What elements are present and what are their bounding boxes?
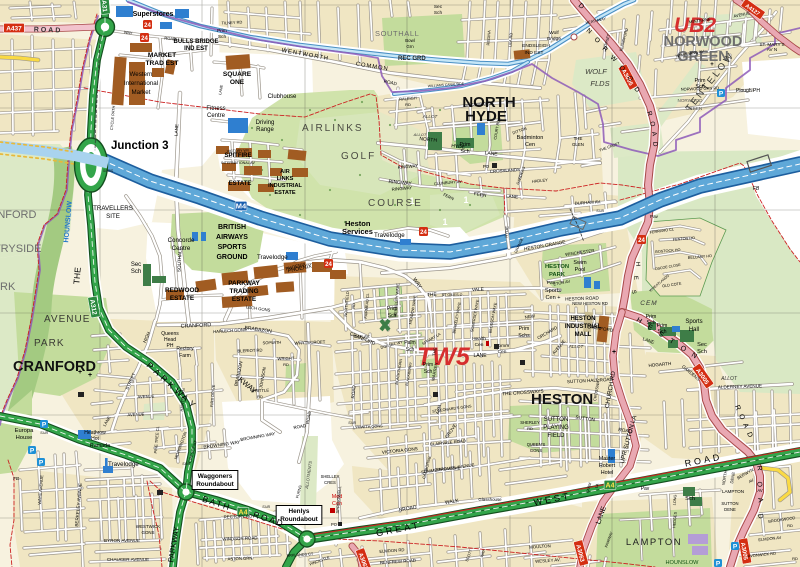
svg-text:P: P (42, 422, 47, 429)
svg-text:1: 1 (463, 195, 468, 205)
svg-text:Services: Services (342, 227, 373, 236)
svg-text:ESTATE: ESTATE (232, 296, 257, 303)
svg-text:Europa: Europa (15, 428, 34, 434)
svg-text:WHITTLE: WHITTLE (251, 388, 270, 394)
svg-text:Badminton: Badminton (517, 135, 544, 141)
svg-text:PO: PO (331, 522, 338, 527)
svg-text:MARKET: MARKET (148, 52, 176, 59)
svg-text:TRAD EST: TRAD EST (146, 60, 179, 67)
svg-text:ENDSLEIGH: ENDSLEIGH (522, 43, 550, 49)
svg-text:WRIGHT: WRIGHT (277, 356, 295, 362)
svg-text:Sports: Sports (685, 319, 702, 325)
svg-text:INDUSTRIAL: INDUSTRIAL (268, 183, 302, 189)
svg-text:Master: Master (599, 456, 616, 462)
svg-text:Wolf: Wolf (549, 30, 559, 36)
svg-text:Hotel: Hotel (601, 470, 614, 476)
svg-text:SPORTS: SPORTS (218, 244, 247, 251)
svg-text:P: P (716, 561, 721, 567)
svg-text:NTRYSIDE: NTRYSIDE (0, 243, 41, 255)
svg-text:+: + (88, 372, 92, 379)
svg-text:Sch: Sch (218, 34, 227, 40)
svg-text:Palm: Palm (404, 340, 415, 346)
svg-text:Market: Market (132, 89, 151, 96)
svg-text:RD: RD (405, 102, 411, 107)
svg-text:PARKWAY: PARKWAY (228, 280, 260, 287)
svg-text:Sch: Sch (434, 10, 443, 16)
svg-text:ST GILES C: ST GILES C (442, 293, 463, 297)
svg-text:ANFORD: ANFORD (0, 209, 37, 221)
svg-text:24: 24 (420, 230, 427, 236)
svg-text:P: P (719, 91, 724, 98)
svg-text:Driving: Driving (256, 120, 275, 126)
svg-text:Western: Western (130, 71, 153, 78)
svg-text:HOUNSLOW: HOUNSLOW (666, 560, 700, 566)
svg-text:P: P (733, 544, 738, 551)
svg-text:Sch: Sch (460, 149, 469, 155)
svg-text:WESTWICK: WESTWICK (136, 524, 160, 529)
svg-text:LANE: LANE (174, 124, 180, 136)
svg-text:+: + (710, 62, 714, 68)
svg-text:AIR: AIR (280, 169, 290, 175)
svg-text:Schs: Schs (518, 333, 530, 339)
svg-text:Sec: Sec (434, 4, 443, 10)
svg-text:AVENUE: AVENUE (44, 314, 90, 325)
svg-text:Sch: Sch (697, 349, 707, 355)
svg-text:AVENUE: AVENUE (137, 394, 154, 400)
svg-text:Sec: Sec (697, 342, 707, 348)
svg-text:24: 24 (638, 238, 645, 244)
svg-text:BULLS BRIDGE: BULLS BRIDGE (174, 39, 219, 45)
svg-text:Grn: Grn (406, 44, 414, 49)
svg-text:AV N: AV N (767, 47, 777, 52)
svg-text:GONS: GONS (530, 448, 543, 453)
svg-text:BRITISH: BRITISH (218, 224, 246, 231)
svg-text:SUB: SUB (596, 209, 604, 213)
svg-text:A4: A4 (606, 483, 615, 490)
svg-text:CEM: CEM (640, 300, 657, 307)
svg-text:Sports: Sports (545, 288, 561, 294)
svg-text:AVENUE: AVENUE (127, 412, 144, 418)
svg-text:Centre: Centre (207, 113, 226, 119)
svg-text:House: House (16, 435, 33, 441)
svg-text:SUB: SUB (40, 431, 48, 435)
svg-text:REC GRD: REC GRD (398, 56, 426, 62)
svg-text:ROAD: ROAD (34, 27, 63, 35)
svg-text:E: E (632, 276, 638, 281)
svg-text:Robert: Robert (599, 463, 616, 469)
svg-text:FB: FB (13, 476, 19, 481)
svg-text:OAK AV.: OAK AV. (354, 334, 371, 339)
svg-text:SOUTHALL: SOUTHALL (375, 29, 419, 38)
svg-text:TRAVELLERS: TRAVELLERS (93, 205, 133, 212)
svg-text:SUBS: SUBS (103, 169, 114, 173)
svg-text:QUEEN'S: QUEEN'S (527, 442, 546, 447)
svg-text:PARK: PARK (549, 272, 566, 278)
svg-text:24: 24 (144, 23, 151, 29)
svg-text:CRES: CRES (324, 480, 336, 485)
svg-text:Prim: Prim (423, 362, 433, 368)
svg-text:+: + (612, 349, 616, 356)
svg-text:Range: Range (256, 127, 274, 133)
svg-text:CHAUCER AVENUE: CHAUCER AVENUE (107, 557, 149, 562)
svg-text:SUB: SUB (348, 421, 356, 425)
svg-text:Ramada: Ramada (90, 443, 110, 449)
svg-text:RD: RD (787, 523, 793, 528)
svg-text:Sch: Sch (658, 329, 667, 335)
svg-text:ALLOT: ALLOT (422, 114, 439, 119)
svg-text:Swim: Swim (573, 260, 587, 266)
svg-text:Travelodge: Travelodge (374, 232, 405, 239)
svg-text:Bowl: Bowl (405, 38, 415, 43)
svg-text:GREEN: GREEN (686, 106, 702, 111)
svg-text:WOLF: WOLF (585, 67, 607, 76)
svg-text:Travelodge: Travelodge (108, 461, 139, 468)
svg-text:Pav: Pav (650, 214, 659, 219)
svg-text:ASTON GRN: ASTON GRN (227, 556, 252, 562)
svg-text:SUTTON: SUTTON (544, 417, 569, 423)
svg-text:IND EST: IND EST (184, 46, 208, 52)
svg-text:AIRWAYS: AIRWAYS (216, 234, 248, 241)
svg-text:THE: THE (427, 292, 437, 299)
svg-text:ESTATE: ESTATE (170, 295, 195, 302)
svg-text:H: H (634, 262, 640, 267)
svg-text:Plough PH: Plough PH (736, 88, 760, 94)
svg-text:HYDE: HYDE (465, 108, 507, 125)
svg-text:ROAD: ROAD (164, 36, 176, 42)
svg-text:SHERLEY: SHERLEY (520, 420, 540, 425)
svg-text:Sch: Sch (131, 269, 141, 275)
svg-text:Sch: Sch (424, 369, 433, 375)
svg-text:Farm: Farm (179, 353, 191, 359)
svg-text:LANE: LANE (484, 150, 498, 157)
svg-text:Cen: Cen (475, 342, 484, 348)
svg-text:FB: FB (753, 186, 760, 192)
svg-text:Superstores: Superstores (133, 11, 174, 18)
svg-text:Hall: Hall (689, 327, 699, 333)
svg-text:S: S (630, 290, 636, 295)
svg-text:RD: RD (792, 556, 798, 561)
svg-text:SOPWITH: SOPWITH (263, 340, 282, 346)
svg-text:GONS: GONS (142, 530, 155, 535)
svg-text:RD: RD (527, 426, 533, 431)
svg-text:THE: THE (71, 267, 82, 285)
svg-text:24: 24 (325, 262, 332, 268)
svg-text:GOLF: GOLF (341, 151, 376, 162)
svg-text:RECTORY RD: RECTORY RD (223, 513, 252, 519)
svg-text:ALLOT: ALLOT (720, 376, 738, 382)
svg-text:REDWOOD: REDWOOD (165, 287, 199, 294)
svg-text:RD: RD (257, 394, 263, 399)
svg-text:Cen +: Cen + (545, 295, 560, 301)
svg-text:AV: AV (757, 488, 762, 493)
svg-text:RK: RK (0, 281, 16, 293)
svg-text:ALLOT: ALLOT (568, 344, 585, 349)
svg-text:LINKS: LINKS (277, 176, 294, 182)
svg-text:1: 1 (409, 196, 414, 206)
svg-text:M4: M4 (236, 202, 247, 211)
svg-text:Clubhouse: Clubhouse (268, 94, 297, 100)
svg-text:Prim: Prim (519, 326, 530, 332)
svg-text:COURSE: COURSE (368, 198, 423, 209)
svg-text:Travelodge: Travelodge (257, 254, 288, 261)
svg-text:SUTTON: SUTTON (721, 501, 738, 506)
svg-text:CRANFORD: CRANFORD (13, 359, 96, 375)
svg-text:SITE: SITE (106, 213, 120, 220)
svg-text:LANE: LANE (506, 194, 518, 200)
svg-text:TRADING: TRADING (229, 288, 258, 295)
svg-text:Rectory: Rectory (176, 346, 194, 352)
svg-text:Pav: Pav (641, 486, 650, 492)
svg-text:NORWOOD: NORWOOD (678, 98, 704, 103)
svg-text:VALE: VALE (472, 287, 484, 294)
svg-text:LAMPTON: LAMPTON (626, 537, 682, 548)
svg-text:Bridge: Bridge (547, 36, 561, 42)
svg-text:Concorde: Concorde (168, 237, 195, 244)
svg-text:NORWOOD: NORWOOD (664, 34, 743, 50)
svg-text:PLAYING: PLAYING (543, 425, 569, 431)
svg-text:Roundabout: Roundabout (196, 481, 234, 488)
svg-text:FLDS: FLDS (590, 79, 609, 88)
svg-text:A437: A437 (6, 26, 22, 33)
svg-text:Pool: Pool (575, 267, 586, 273)
svg-text:HESTON: HESTON (545, 264, 569, 270)
svg-text:Sch: Sch (406, 347, 415, 353)
svg-text:Sch: Sch (647, 320, 656, 326)
svg-text:PH: PH (167, 343, 174, 349)
svg-text:DENE: DENE (724, 507, 736, 512)
svg-text:THE: THE (574, 136, 583, 141)
svg-text:Sec: Sec (131, 262, 141, 268)
svg-text:1: 1 (442, 217, 447, 227)
svg-text:BYRON AVENUE: BYRON AVENUE (104, 538, 140, 543)
svg-text:NEW HESTON RD: NEW HESTON RD (572, 301, 608, 306)
svg-text:Cen: Cen (498, 349, 507, 355)
svg-text:International: International (124, 80, 158, 87)
svg-text:INDUSTRIAL: INDUSTRIAL (565, 324, 602, 330)
svg-text:RD: RD (283, 362, 289, 367)
svg-text:LANE: LANE (473, 353, 487, 359)
svg-text:Prim: Prim (217, 28, 227, 34)
svg-text:Fitness: Fitness (206, 106, 225, 112)
svg-text:Henlys: Henlys (289, 508, 310, 515)
svg-text:PO: PO (483, 164, 490, 169)
svg-text:SQUARE: SQUARE (223, 71, 252, 78)
svg-text:LAMPTON: LAMPTON (722, 489, 744, 494)
svg-text:PARK: PARK (34, 338, 65, 349)
svg-text:ESTATE: ESTATE (229, 181, 252, 187)
svg-text:SPITFIRE: SPITFIRE (224, 153, 251, 159)
svg-text:Prim: Prim (459, 142, 471, 148)
svg-text:+: + (78, 369, 82, 376)
svg-text:Cen: Cen (525, 142, 535, 148)
svg-text:Glasshouse: Glasshouse (478, 497, 502, 502)
svg-text:24: 24 (141, 36, 148, 42)
svg-text:GLEN: GLEN (572, 142, 584, 147)
svg-text:P: P (30, 448, 35, 455)
svg-text:FIELD: FIELD (547, 433, 565, 439)
svg-text:P: P (39, 460, 44, 467)
svg-text:Junction 3: Junction 3 (111, 140, 169, 152)
svg-text:IND EST: IND EST (525, 50, 544, 56)
svg-text:MALL: MALL (575, 332, 592, 338)
svg-text:VICTORY WY: VICTORY WY (227, 149, 250, 154)
svg-text:SUB: SUB (182, 462, 190, 466)
svg-text:Health: Health (472, 336, 486, 342)
svg-text:SUB: SUB (262, 505, 270, 509)
svg-text:HESTON: HESTON (571, 316, 596, 322)
svg-text:ALLOT: ALLOT (413, 132, 427, 137)
svg-text:Sch: Sch (685, 496, 695, 502)
svg-text:A31: A31 (100, 0, 108, 13)
svg-text:SHELLEY: SHELLEY (321, 474, 340, 479)
svg-text:ESTATE: ESTATE (274, 190, 296, 196)
svg-text:AIRLINKS: AIRLINKS (302, 123, 364, 134)
svg-text:INTERNATIONAL AV: INTERNATIONAL AV (221, 161, 255, 165)
svg-text:ONE: ONE (230, 79, 245, 86)
svg-text:D: D (651, 142, 658, 148)
svg-text:GROUND: GROUND (216, 254, 247, 261)
svg-text:Hot: Hot (91, 436, 99, 442)
svg-text:Waggoners: Waggoners (198, 473, 233, 480)
svg-text:BLERIOT RD: BLERIOT RD (237, 348, 262, 354)
svg-text:HYDE: HYDE (504, 226, 510, 238)
svg-text:RD: RD (351, 303, 356, 309)
